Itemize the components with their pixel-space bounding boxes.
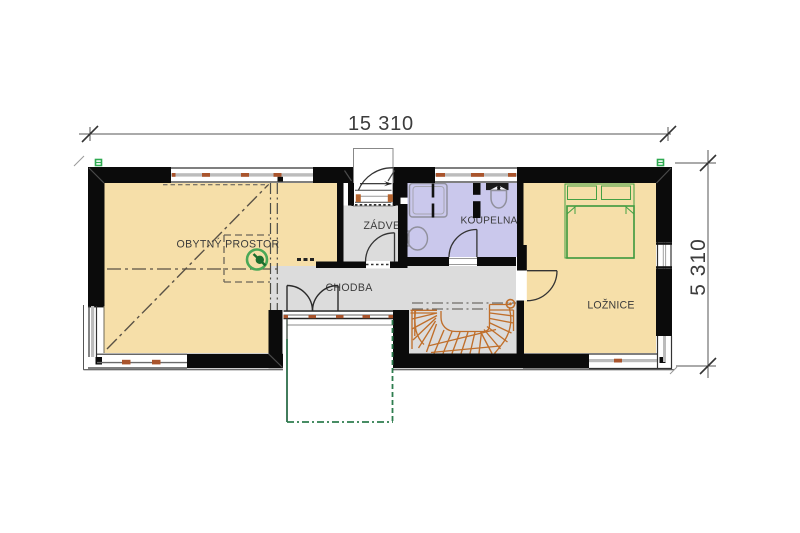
svg-text:5 310: 5 310 bbox=[687, 238, 710, 296]
svg-text:LOŽNICE: LOŽNICE bbox=[587, 299, 634, 312]
svg-text:15 310: 15 310 bbox=[348, 113, 414, 135]
svg-text:KOUPELNA: KOUPELNA bbox=[460, 216, 517, 227]
svg-text:CHODBA: CHODBA bbox=[325, 282, 373, 294]
svg-text:OBYTNÝ PROSTOR: OBYTNÝ PROSTOR bbox=[177, 238, 280, 251]
